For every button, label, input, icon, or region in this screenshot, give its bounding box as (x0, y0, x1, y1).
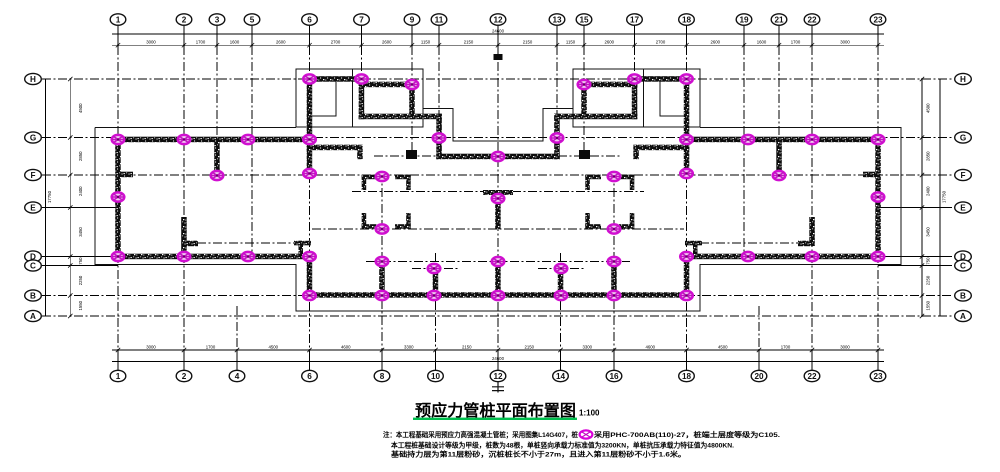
svg-text:采用PHC-700AB(110)-27，桩端土层度等级为C1: 采用PHC-700AB(110)-27，桩端土层度等级为C105. (593, 430, 780, 439)
svg-text:C: C (30, 261, 36, 270)
svg-text:3000: 3000 (146, 344, 156, 349)
svg-text:2400: 2400 (78, 186, 83, 196)
svg-text:17750: 17750 (47, 190, 52, 203)
svg-text:C: C (960, 261, 966, 270)
svg-text:G: G (960, 133, 966, 142)
svg-text:2850: 2850 (926, 151, 931, 161)
svg-text:4600: 4600 (341, 344, 351, 349)
svg-text:1700: 1700 (196, 40, 206, 45)
svg-text:B: B (30, 291, 36, 300)
svg-text:1600: 1600 (230, 40, 240, 45)
svg-text:3300: 3300 (582, 344, 592, 349)
svg-text:2150: 2150 (462, 344, 472, 349)
svg-text:E: E (30, 203, 36, 212)
svg-text:1700: 1700 (781, 344, 791, 349)
svg-text:2: 2 (182, 372, 187, 381)
svg-text:4500: 4500 (718, 344, 728, 349)
svg-text:F: F (960, 171, 965, 180)
svg-text:4500: 4500 (78, 103, 83, 113)
svg-text:4500: 4500 (926, 103, 931, 113)
svg-text:23: 23 (873, 372, 883, 381)
svg-text:3450: 3450 (926, 227, 931, 237)
svg-text:2150: 2150 (523, 40, 533, 45)
svg-text:H: H (960, 75, 966, 84)
svg-text:1:100: 1:100 (579, 409, 600, 418)
svg-text:1150: 1150 (421, 40, 431, 45)
svg-text:注：本工程基础采用预应力高强混凝土管桩；采用图集L14G40: 注：本工程基础采用预应力高强混凝土管桩；采用图集L14G407，桩 (383, 430, 578, 439)
svg-text:2600: 2600 (382, 40, 392, 45)
svg-text:2150: 2150 (524, 344, 534, 349)
svg-text:1700: 1700 (206, 344, 216, 349)
svg-text:22: 22 (807, 372, 817, 381)
svg-text:2400: 2400 (926, 186, 931, 196)
svg-text:2600: 2600 (710, 40, 720, 45)
svg-text:G: G (30, 133, 36, 142)
svg-text:2700: 2700 (656, 40, 666, 45)
svg-text:2850: 2850 (78, 151, 83, 161)
svg-text:17: 17 (630, 15, 640, 24)
svg-text:6: 6 (307, 372, 312, 381)
svg-text:9: 9 (410, 15, 415, 24)
svg-text:1: 1 (116, 372, 121, 381)
svg-text:2600: 2600 (604, 40, 614, 45)
svg-text:1550: 1550 (926, 300, 931, 310)
svg-text:A: A (960, 312, 966, 321)
svg-text:E: E (960, 203, 966, 212)
svg-text:5: 5 (250, 15, 255, 24)
svg-text:本工程桩基础设计等级为甲级，桩数为48根，单桩竖向承载力标准: 本工程桩基础设计等级为甲级，桩数为48根，单桩竖向承载力标准值为3200KN，单… (391, 441, 734, 450)
svg-text:10: 10 (431, 372, 441, 381)
svg-text:1550: 1550 (78, 300, 83, 310)
svg-text:2250: 2250 (926, 275, 931, 285)
svg-text:23: 23 (873, 15, 883, 24)
svg-text:20: 20 (754, 372, 764, 381)
svg-text:F: F (30, 171, 35, 180)
svg-text:B: B (960, 291, 966, 300)
svg-text:1600: 1600 (757, 40, 767, 45)
svg-text:750: 750 (78, 257, 83, 265)
svg-text:22: 22 (807, 15, 817, 24)
svg-text:24600: 24600 (492, 356, 505, 361)
svg-text:3450: 3450 (78, 227, 83, 237)
svg-text:17750: 17750 (942, 190, 947, 203)
svg-text:12: 12 (493, 15, 503, 24)
svg-text:12: 12 (493, 372, 503, 381)
svg-text:16: 16 (609, 372, 619, 381)
svg-text:750: 750 (926, 257, 931, 265)
svg-text:2250: 2250 (78, 275, 83, 285)
svg-text:基础持力层为第11层粉砂，沉桩桩长不小于27m，且进入第11: 基础持力层为第11层粉砂，沉桩桩长不小于27m，且进入第11层粉砂不小于1.6米… (390, 450, 686, 459)
svg-text:4600: 4600 (645, 344, 655, 349)
svg-text:1700: 1700 (791, 40, 801, 45)
svg-text:8: 8 (380, 372, 385, 381)
svg-text:4: 4 (235, 372, 240, 381)
svg-text:2150: 2150 (464, 40, 474, 45)
svg-text:3300: 3300 (404, 344, 414, 349)
svg-text:21: 21 (774, 15, 784, 24)
svg-text:19: 19 (739, 15, 749, 24)
svg-text:11: 11 (435, 15, 444, 24)
svg-text:2700: 2700 (331, 40, 341, 45)
svg-text:A: A (30, 312, 36, 321)
svg-text:1: 1 (116, 15, 121, 24)
svg-text:2: 2 (182, 15, 187, 24)
svg-text:4500: 4500 (268, 344, 278, 349)
svg-text:H: H (30, 75, 36, 84)
svg-text:7: 7 (359, 15, 364, 24)
svg-text:6: 6 (307, 15, 312, 24)
svg-text:预应力管桩平面布置图: 预应力管桩平面布置图 (415, 401, 576, 420)
svg-text:3000: 3000 (840, 40, 850, 45)
svg-text:18: 18 (682, 15, 692, 24)
svg-text:1150: 1150 (566, 40, 576, 45)
svg-text:14: 14 (556, 372, 566, 381)
svg-text:3000: 3000 (146, 40, 156, 45)
svg-text:3000: 3000 (840, 344, 850, 349)
svg-text:13: 13 (552, 15, 562, 24)
svg-text:2600: 2600 (276, 40, 286, 45)
svg-text:24600: 24600 (492, 28, 505, 33)
svg-text:3: 3 (215, 15, 220, 24)
svg-text:15: 15 (579, 15, 589, 24)
svg-text:18: 18 (682, 372, 692, 381)
